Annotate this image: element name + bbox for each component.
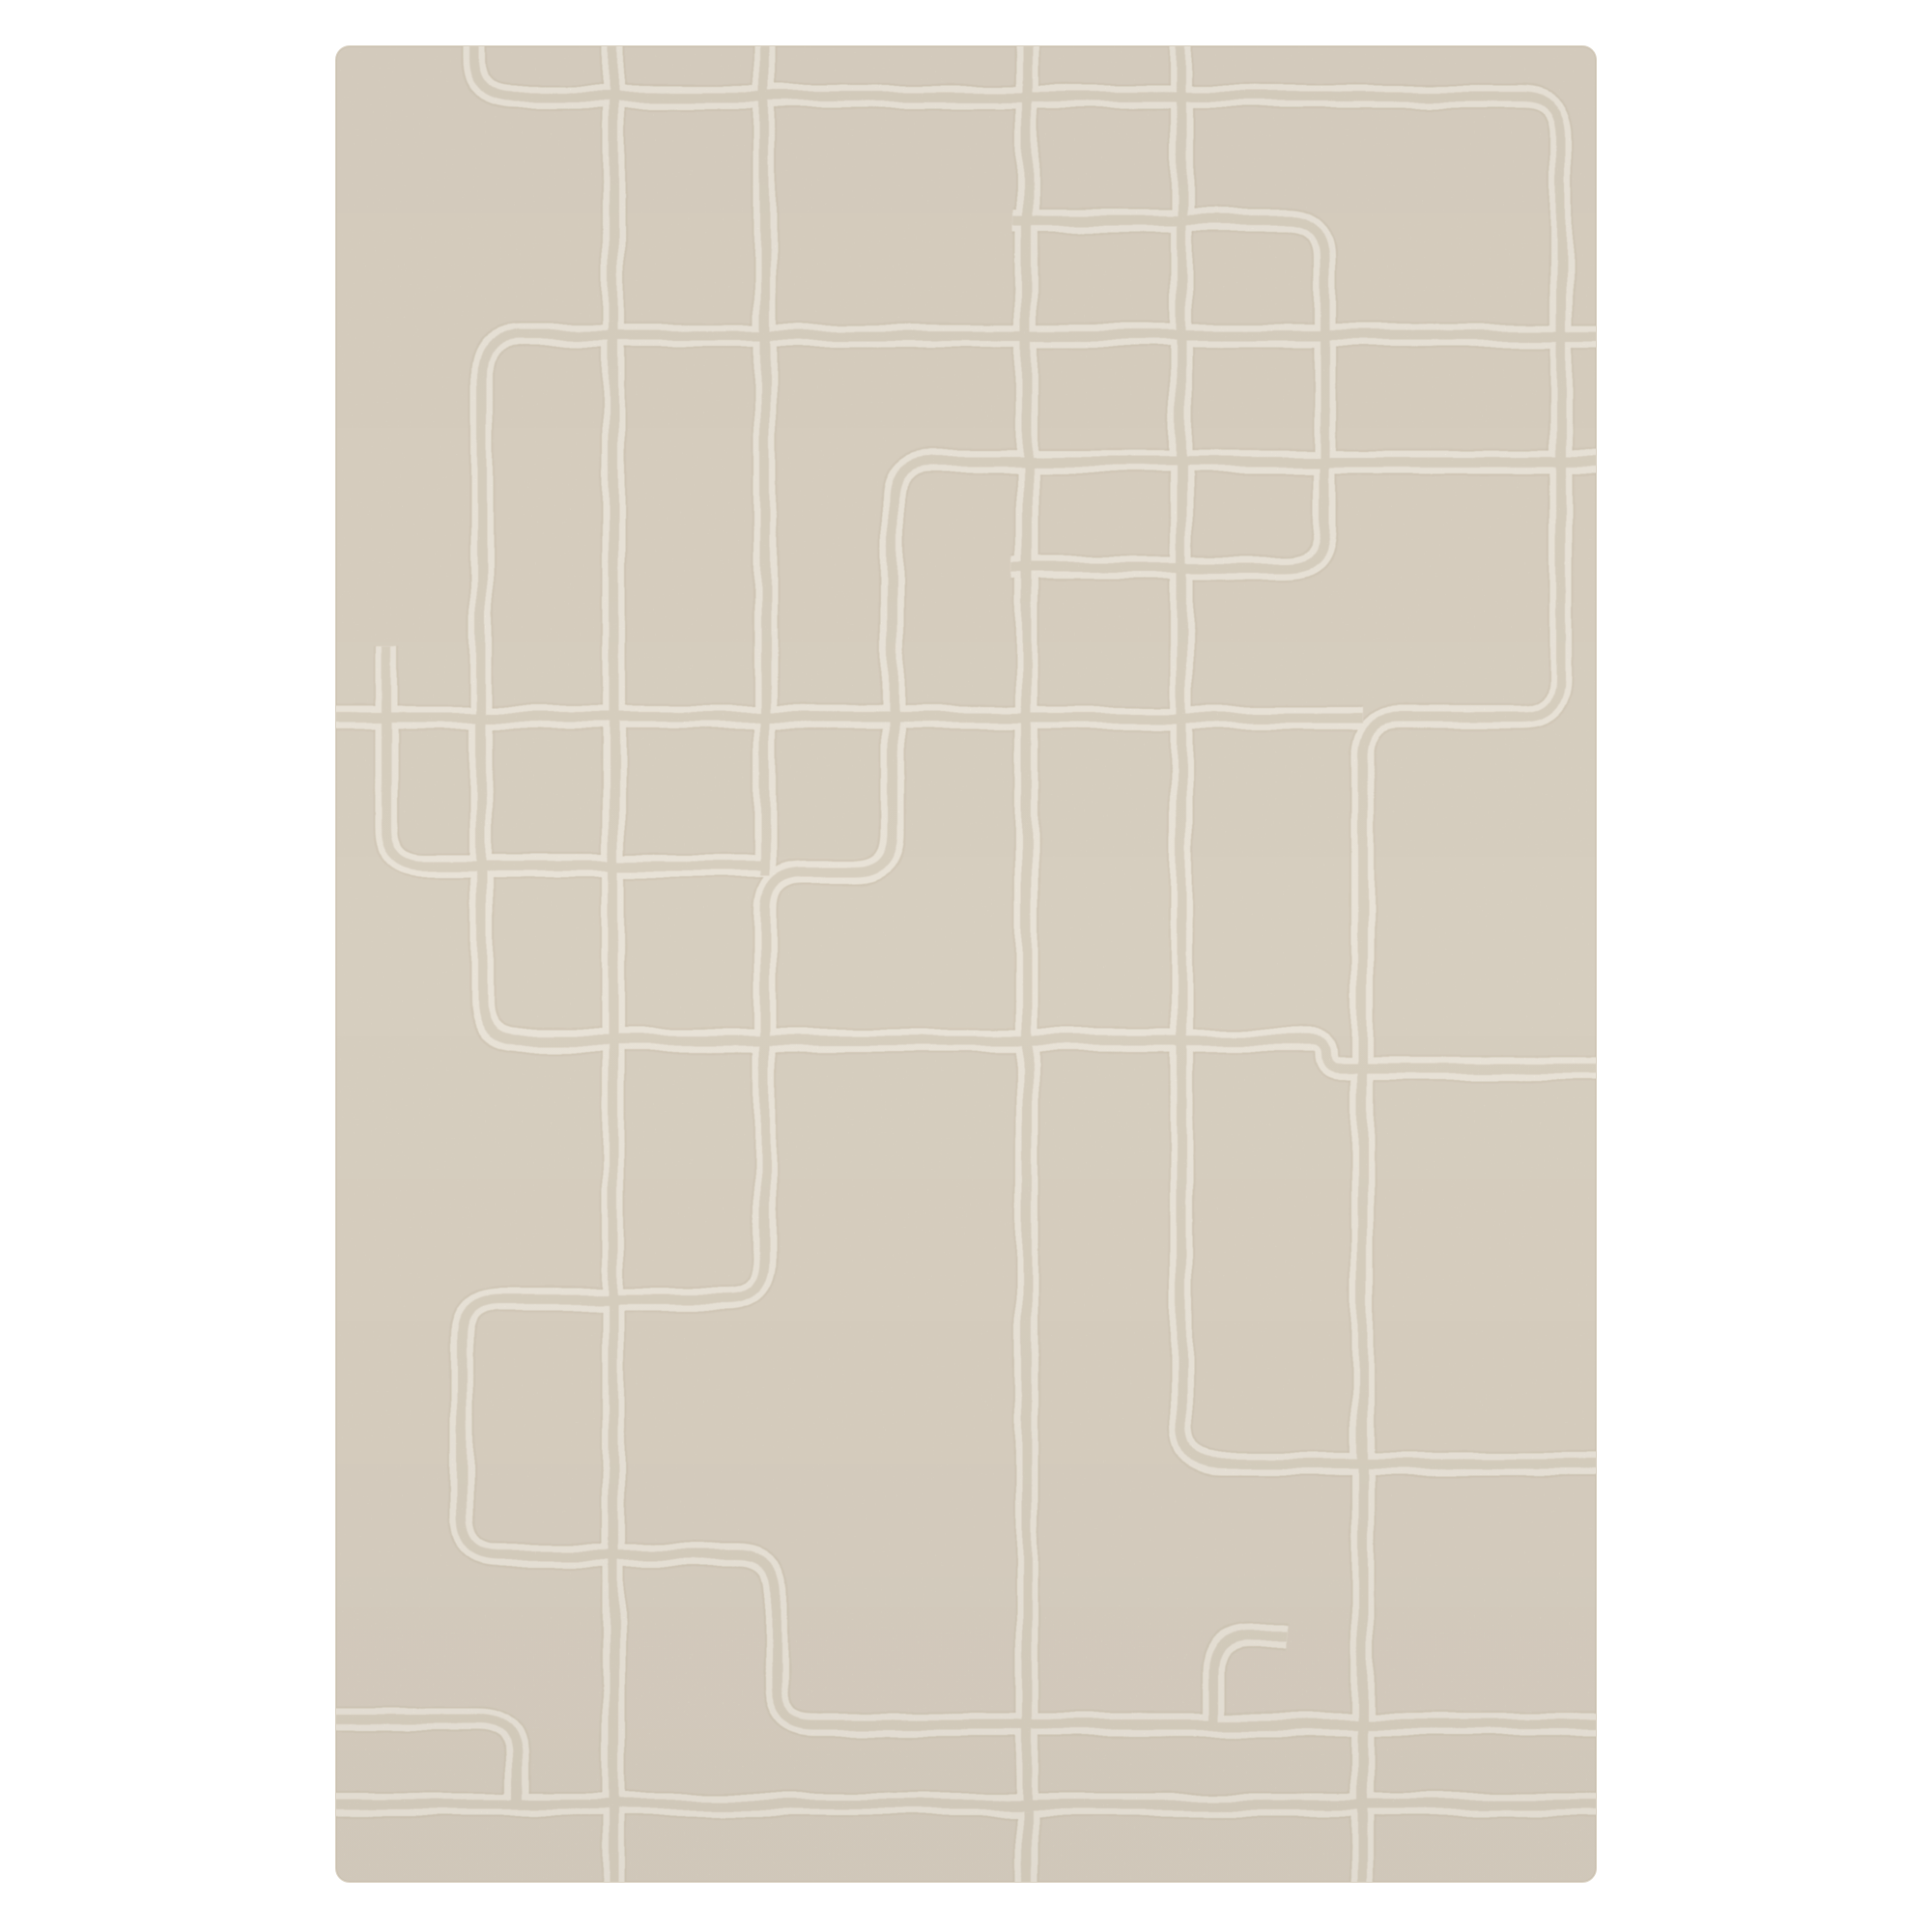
rug-photo-svg bbox=[0, 0, 1932, 1932]
rug-edge-shading bbox=[336, 46, 1596, 1882]
rug bbox=[307, 17, 1625, 1911]
product-photo bbox=[0, 0, 1932, 1932]
